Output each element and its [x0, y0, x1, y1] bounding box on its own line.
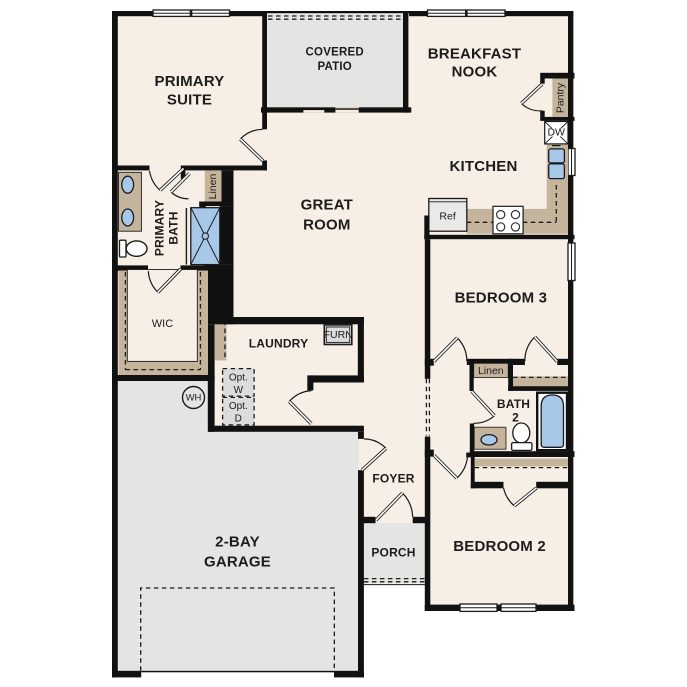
svg-text:BATH: BATH — [497, 397, 530, 411]
svg-text:PORCH: PORCH — [371, 546, 415, 560]
svg-text:SUITE: SUITE — [167, 92, 212, 109]
svg-text:COVERED: COVERED — [306, 47, 364, 59]
svg-text:2-BAY: 2-BAY — [215, 534, 260, 551]
svg-text:D: D — [235, 414, 242, 425]
svg-text:ROOM: ROOM — [303, 217, 350, 234]
svg-text:WIC: WIC — [152, 318, 173, 330]
svg-text:NOOK: NOOK — [452, 64, 498, 81]
svg-text:FURN: FURN — [324, 329, 353, 341]
svg-text:PRIMARY: PRIMARY — [153, 200, 167, 256]
svg-text:PATIO: PATIO — [317, 61, 351, 73]
svg-text:Opt.: Opt. — [229, 401, 248, 412]
svg-text:LAUNDRY: LAUNDRY — [249, 336, 309, 350]
svg-text:Linen: Linen — [207, 174, 219, 200]
svg-text:Pantry: Pantry — [555, 82, 567, 113]
svg-text:Linen: Linen — [478, 365, 504, 377]
svg-text:WH: WH — [186, 393, 202, 404]
svg-text:KITCHEN: KITCHEN — [449, 158, 517, 175]
svg-text:Ref: Ref — [439, 211, 455, 223]
svg-text:GREAT: GREAT — [301, 197, 353, 214]
svg-text:W: W — [234, 385, 244, 396]
svg-text:BATH: BATH — [167, 211, 181, 244]
svg-text:BEDROOM 3: BEDROOM 3 — [455, 290, 548, 307]
svg-text:GARAGE: GARAGE — [204, 554, 271, 571]
svg-text:PRIMARY: PRIMARY — [154, 73, 224, 90]
svg-text:BREAKFAST: BREAKFAST — [428, 46, 521, 63]
svg-text:BEDROOM 2: BEDROOM 2 — [453, 538, 546, 555]
svg-text:FOYER: FOYER — [372, 471, 414, 485]
svg-text:2: 2 — [512, 411, 519, 425]
svg-text:Opt.: Opt. — [229, 372, 248, 383]
svg-text:DW: DW — [547, 127, 565, 139]
